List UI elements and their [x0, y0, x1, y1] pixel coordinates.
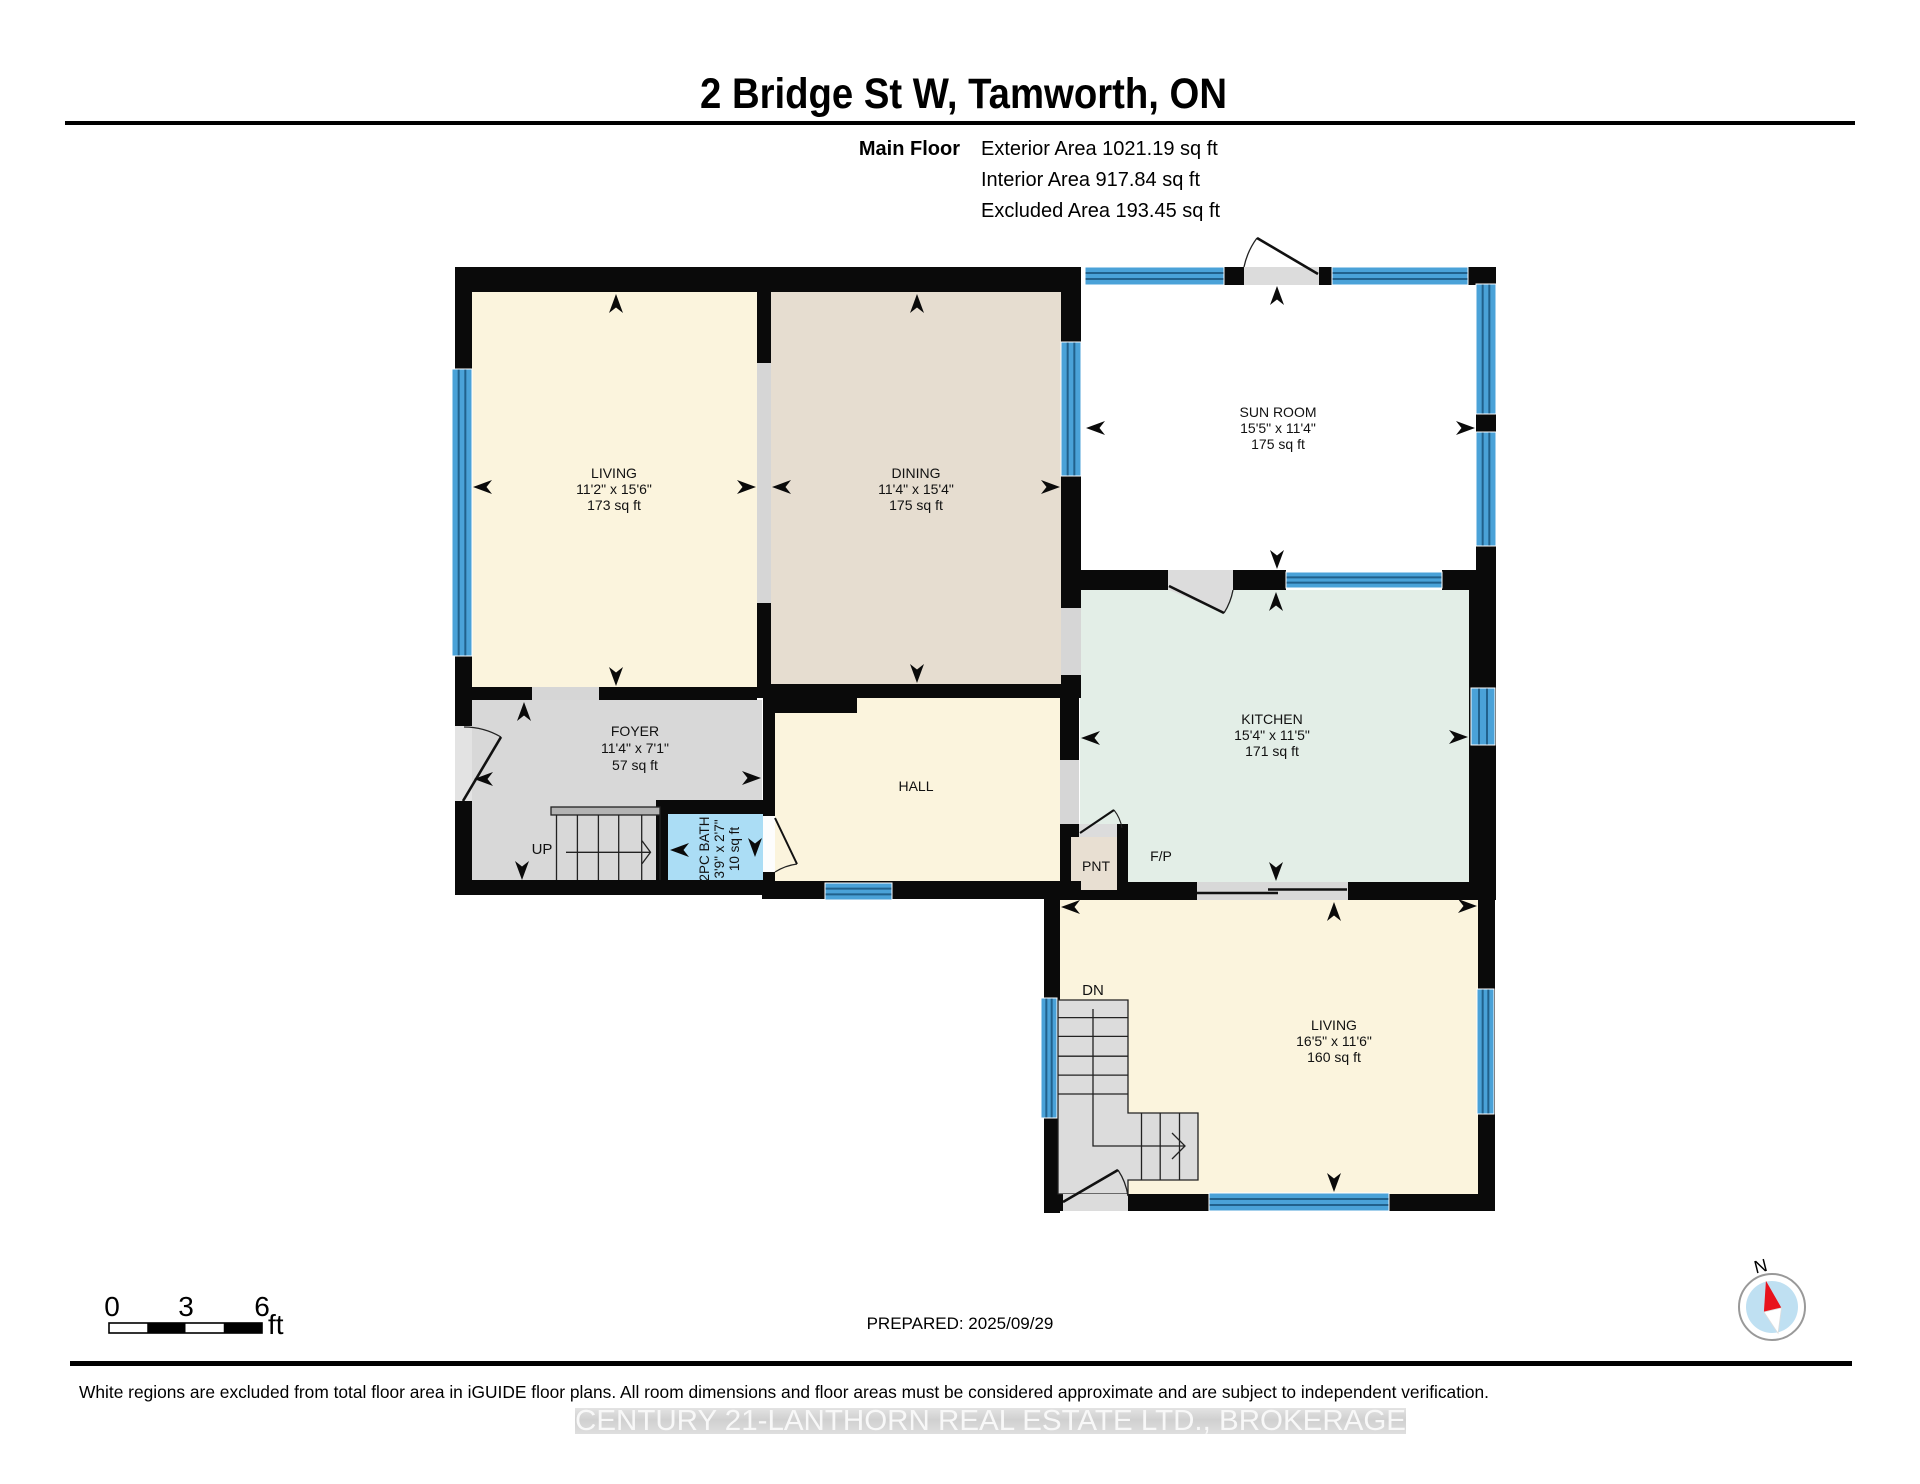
svg-text:175 sq ft: 175 sq ft	[1251, 436, 1305, 452]
svg-text:16'5" x 11'6": 16'5" x 11'6"	[1296, 1033, 1372, 1049]
svg-text:57 sq ft: 57 sq ft	[612, 757, 658, 773]
svg-text:3'9" x 2'7": 3'9" x 2'7"	[712, 819, 727, 878]
svg-text:White regions are excluded fro: White regions are excluded from total fl…	[79, 1382, 1489, 1402]
svg-text:PREPARED: 2025/09/29: PREPARED: 2025/09/29	[867, 1314, 1054, 1333]
svg-text:173 sq ft: 173 sq ft	[587, 497, 641, 513]
svg-text:ft: ft	[268, 1309, 284, 1340]
svg-text:175 sq ft: 175 sq ft	[889, 497, 943, 513]
svg-text:KITCHEN: KITCHEN	[1241, 711, 1302, 727]
svg-text:PNT: PNT	[1082, 858, 1110, 874]
svg-text:0: 0	[104, 1291, 120, 1322]
svg-text:Exterior Area 1021.19 sq ft: Exterior Area 1021.19 sq ft	[981, 138, 1218, 160]
svg-text:2 Bridge St W, Tamworth, ON: 2 Bridge St W, Tamworth, ON	[700, 70, 1227, 118]
svg-text:11'2" x 15'6": 11'2" x 15'6"	[576, 481, 652, 497]
svg-text:15'4" x 11'5": 15'4" x 11'5"	[1234, 727, 1310, 743]
svg-text:DN: DN	[1082, 982, 1104, 999]
svg-text:Main Floor: Main Floor	[859, 138, 960, 160]
svg-text:10 sq ft: 10 sq ft	[727, 827, 742, 872]
svg-text:160 sq ft: 160 sq ft	[1307, 1049, 1361, 1065]
svg-text:LIVING: LIVING	[1311, 1017, 1357, 1033]
svg-text:CENTURY 21-LANTHORN REAL ESTAT: CENTURY 21-LANTHORN REAL ESTATE LTD., BR…	[575, 1405, 1406, 1437]
svg-text:DINING: DINING	[892, 465, 941, 481]
svg-text:FOYER: FOYER	[611, 723, 659, 739]
svg-text:11'4" x 15'4": 11'4" x 15'4"	[878, 481, 954, 497]
svg-text:15'5" x 11'4": 15'5" x 11'4"	[1240, 420, 1316, 436]
svg-text:F/P: F/P	[1150, 848, 1172, 864]
svg-text:3: 3	[178, 1291, 194, 1322]
svg-text:11'4" x 7'1": 11'4" x 7'1"	[601, 740, 669, 756]
svg-text:SUN ROOM: SUN ROOM	[1240, 404, 1317, 420]
svg-text:HALL: HALL	[898, 778, 933, 794]
svg-text:Interior Area 917.84 sq ft: Interior Area 917.84 sq ft	[981, 169, 1200, 191]
svg-text:LIVING: LIVING	[591, 465, 637, 481]
svg-text:171 sq ft: 171 sq ft	[1245, 743, 1299, 759]
svg-text:UP: UP	[532, 841, 553, 858]
svg-text:2PC BATH: 2PC BATH	[697, 816, 712, 881]
svg-text:Excluded Area 193.45 sq ft: Excluded Area 193.45 sq ft	[981, 200, 1220, 222]
